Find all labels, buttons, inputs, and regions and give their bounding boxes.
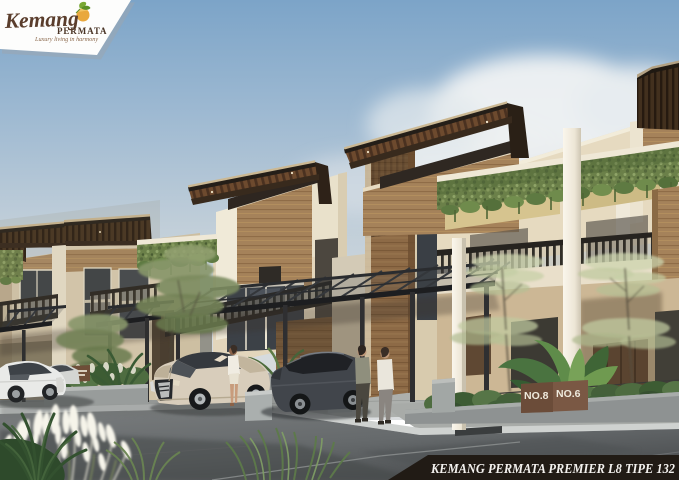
svg-text:Luxury living in harmony: Luxury living in harmony [34, 36, 98, 43]
svg-text:NO.6: NO.6 [556, 388, 581, 400]
svg-text:PERMATA: PERMATA [57, 26, 107, 36]
svg-text:KEMANG PERMATA PREMIER L8 TIPE: KEMANG PERMATA PREMIER L8 TIPE 132 [430, 461, 675, 476]
svg-text:NO.8: NO.8 [524, 390, 549, 402]
